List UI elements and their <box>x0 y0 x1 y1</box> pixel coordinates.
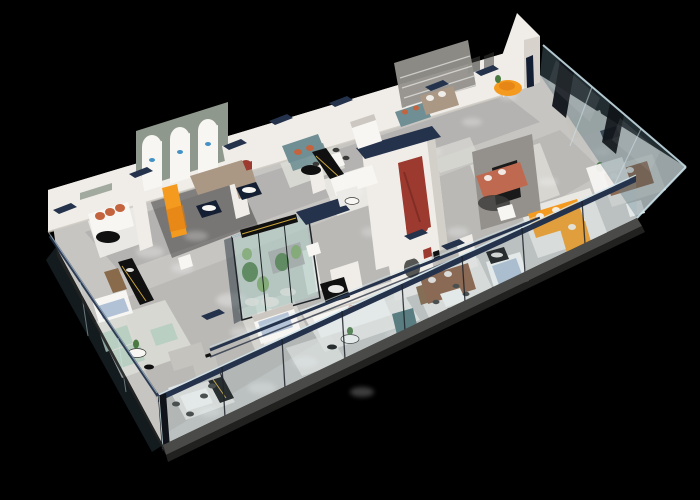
ceiling-spotlight-glow <box>538 178 558 186</box>
dining-chair <box>343 156 350 160</box>
white-pillow <box>498 169 506 175</box>
showroom-floorplan-render <box>0 0 700 500</box>
white-pillow <box>426 95 434 101</box>
arched-lightbox <box>170 133 190 184</box>
potted-plant <box>133 340 139 349</box>
terracotta-cushion <box>105 208 115 216</box>
ceiling-spotlight-glow <box>230 327 254 337</box>
ceiling-spotlight-glow <box>350 387 374 397</box>
terracotta-cushion <box>402 110 408 115</box>
terracotta-cushion <box>306 145 314 151</box>
dining-chair <box>313 162 320 166</box>
counter-display-object <box>126 268 134 272</box>
white-pillow <box>438 91 446 97</box>
ceiling-spotlight-glow <box>447 227 469 237</box>
ceiling-spotlight-glow <box>462 118 482 126</box>
terracotta-cushion <box>95 212 105 220</box>
standing-figure-cutout <box>526 55 534 88</box>
ceiling-spotlight-glow <box>184 231 208 241</box>
arch-logo-mark <box>205 142 211 146</box>
display-table-top <box>242 187 256 193</box>
display-table-top <box>328 285 344 293</box>
terracotta-cushion <box>115 204 125 212</box>
display-table-top <box>202 205 216 211</box>
arched-lightbox <box>142 141 162 192</box>
black-oval-table <box>301 165 321 175</box>
terracotta-cushion <box>294 149 302 155</box>
side-table <box>345 198 359 205</box>
potted-plant <box>495 75 501 83</box>
arch-logo-mark <box>149 158 155 162</box>
dining-chair <box>333 148 340 152</box>
showroom-render-stage: Isometric 3D cutaway rendering of a furn… <box>0 0 700 500</box>
white-pillow <box>484 175 492 181</box>
curved-orange-sofa-seat <box>499 82 515 91</box>
black-oval-table <box>96 231 120 243</box>
arch-logo-mark <box>177 150 183 154</box>
terracotta-cushion <box>413 106 419 111</box>
black-tray-table <box>144 365 154 370</box>
